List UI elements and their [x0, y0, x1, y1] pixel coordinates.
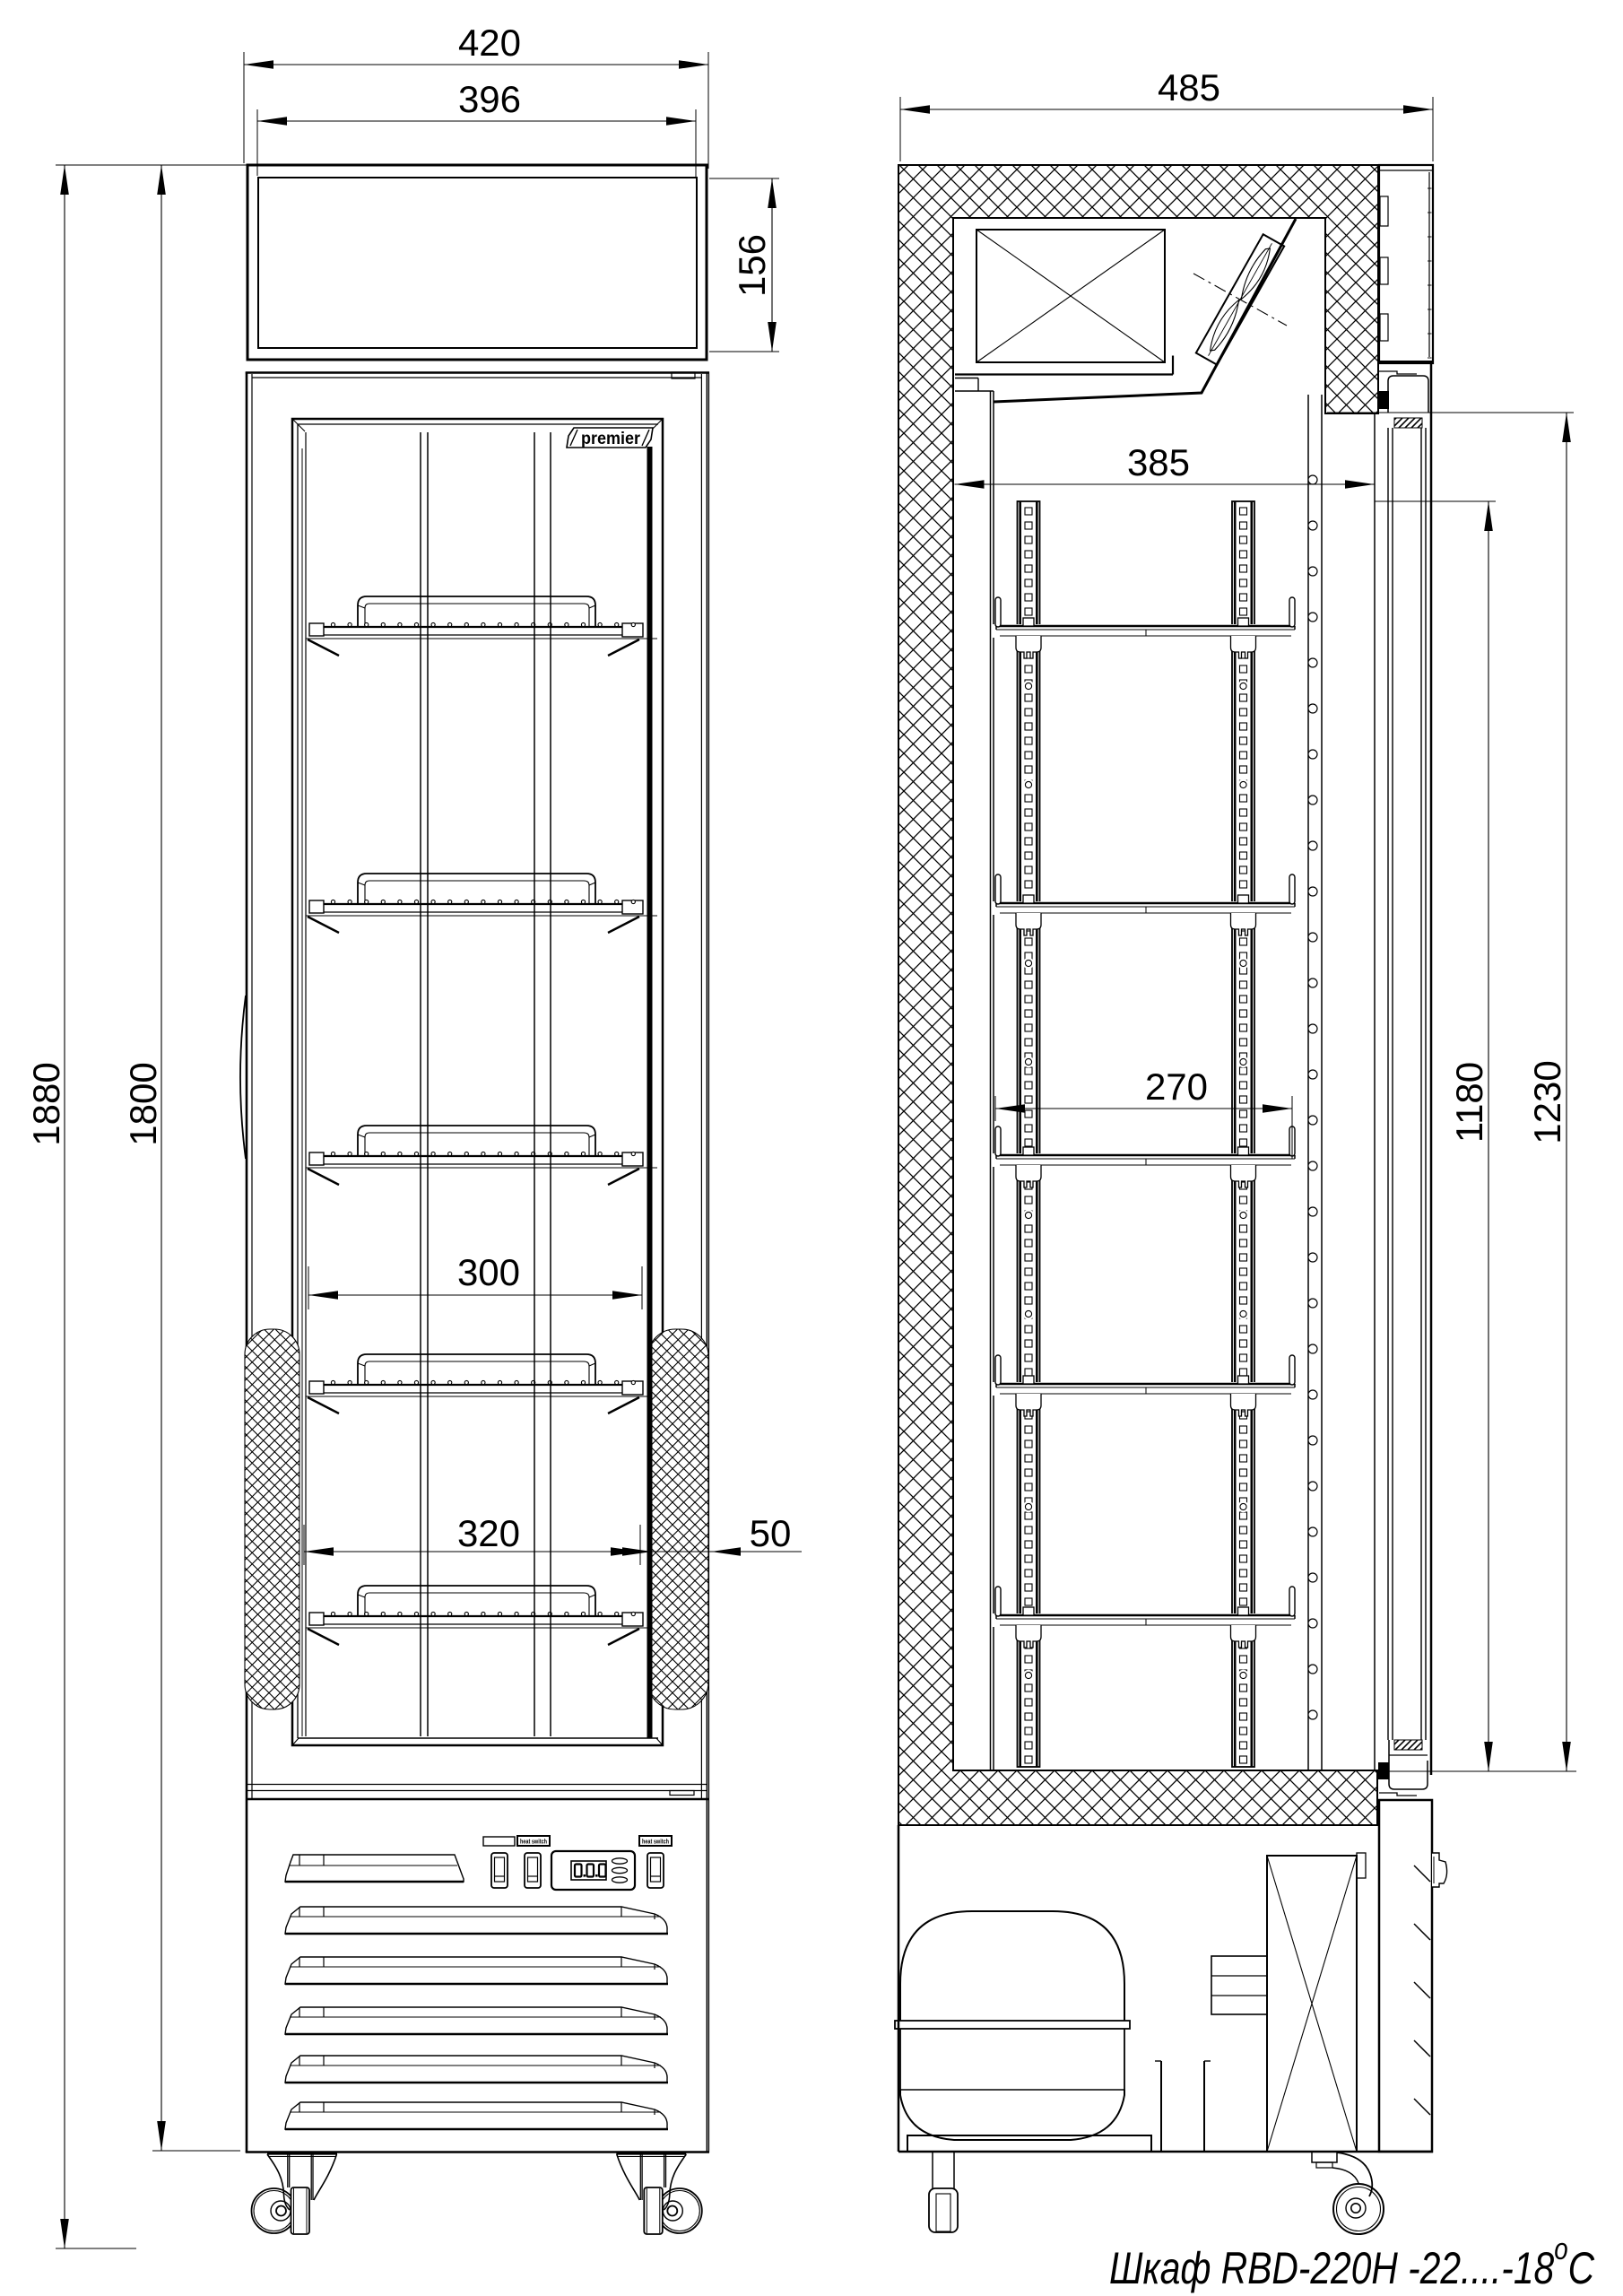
svg-text:420: 420: [458, 22, 521, 64]
svg-text:1880: 1880: [25, 1062, 67, 1145]
svg-text:320: 320: [457, 1512, 520, 1554]
svg-text:156: 156: [731, 234, 773, 297]
svg-text:485: 485: [1158, 66, 1220, 109]
svg-text:premier: premier: [581, 430, 641, 448]
svg-text:1800: 1800: [122, 1062, 164, 1145]
svg-text:396: 396: [458, 78, 521, 120]
svg-text:300: 300: [457, 1251, 520, 1293]
svg-text:1230: 1230: [1526, 1060, 1568, 1144]
svg-text:385: 385: [1127, 441, 1190, 483]
svg-text:1180: 1180: [1448, 1062, 1490, 1143]
svg-text:270: 270: [1145, 1065, 1208, 1108]
svg-text:50: 50: [750, 1512, 792, 1554]
svg-text:heat switch: heat switch: [642, 1839, 669, 1846]
svg-text:heat switch: heat switch: [520, 1839, 547, 1846]
